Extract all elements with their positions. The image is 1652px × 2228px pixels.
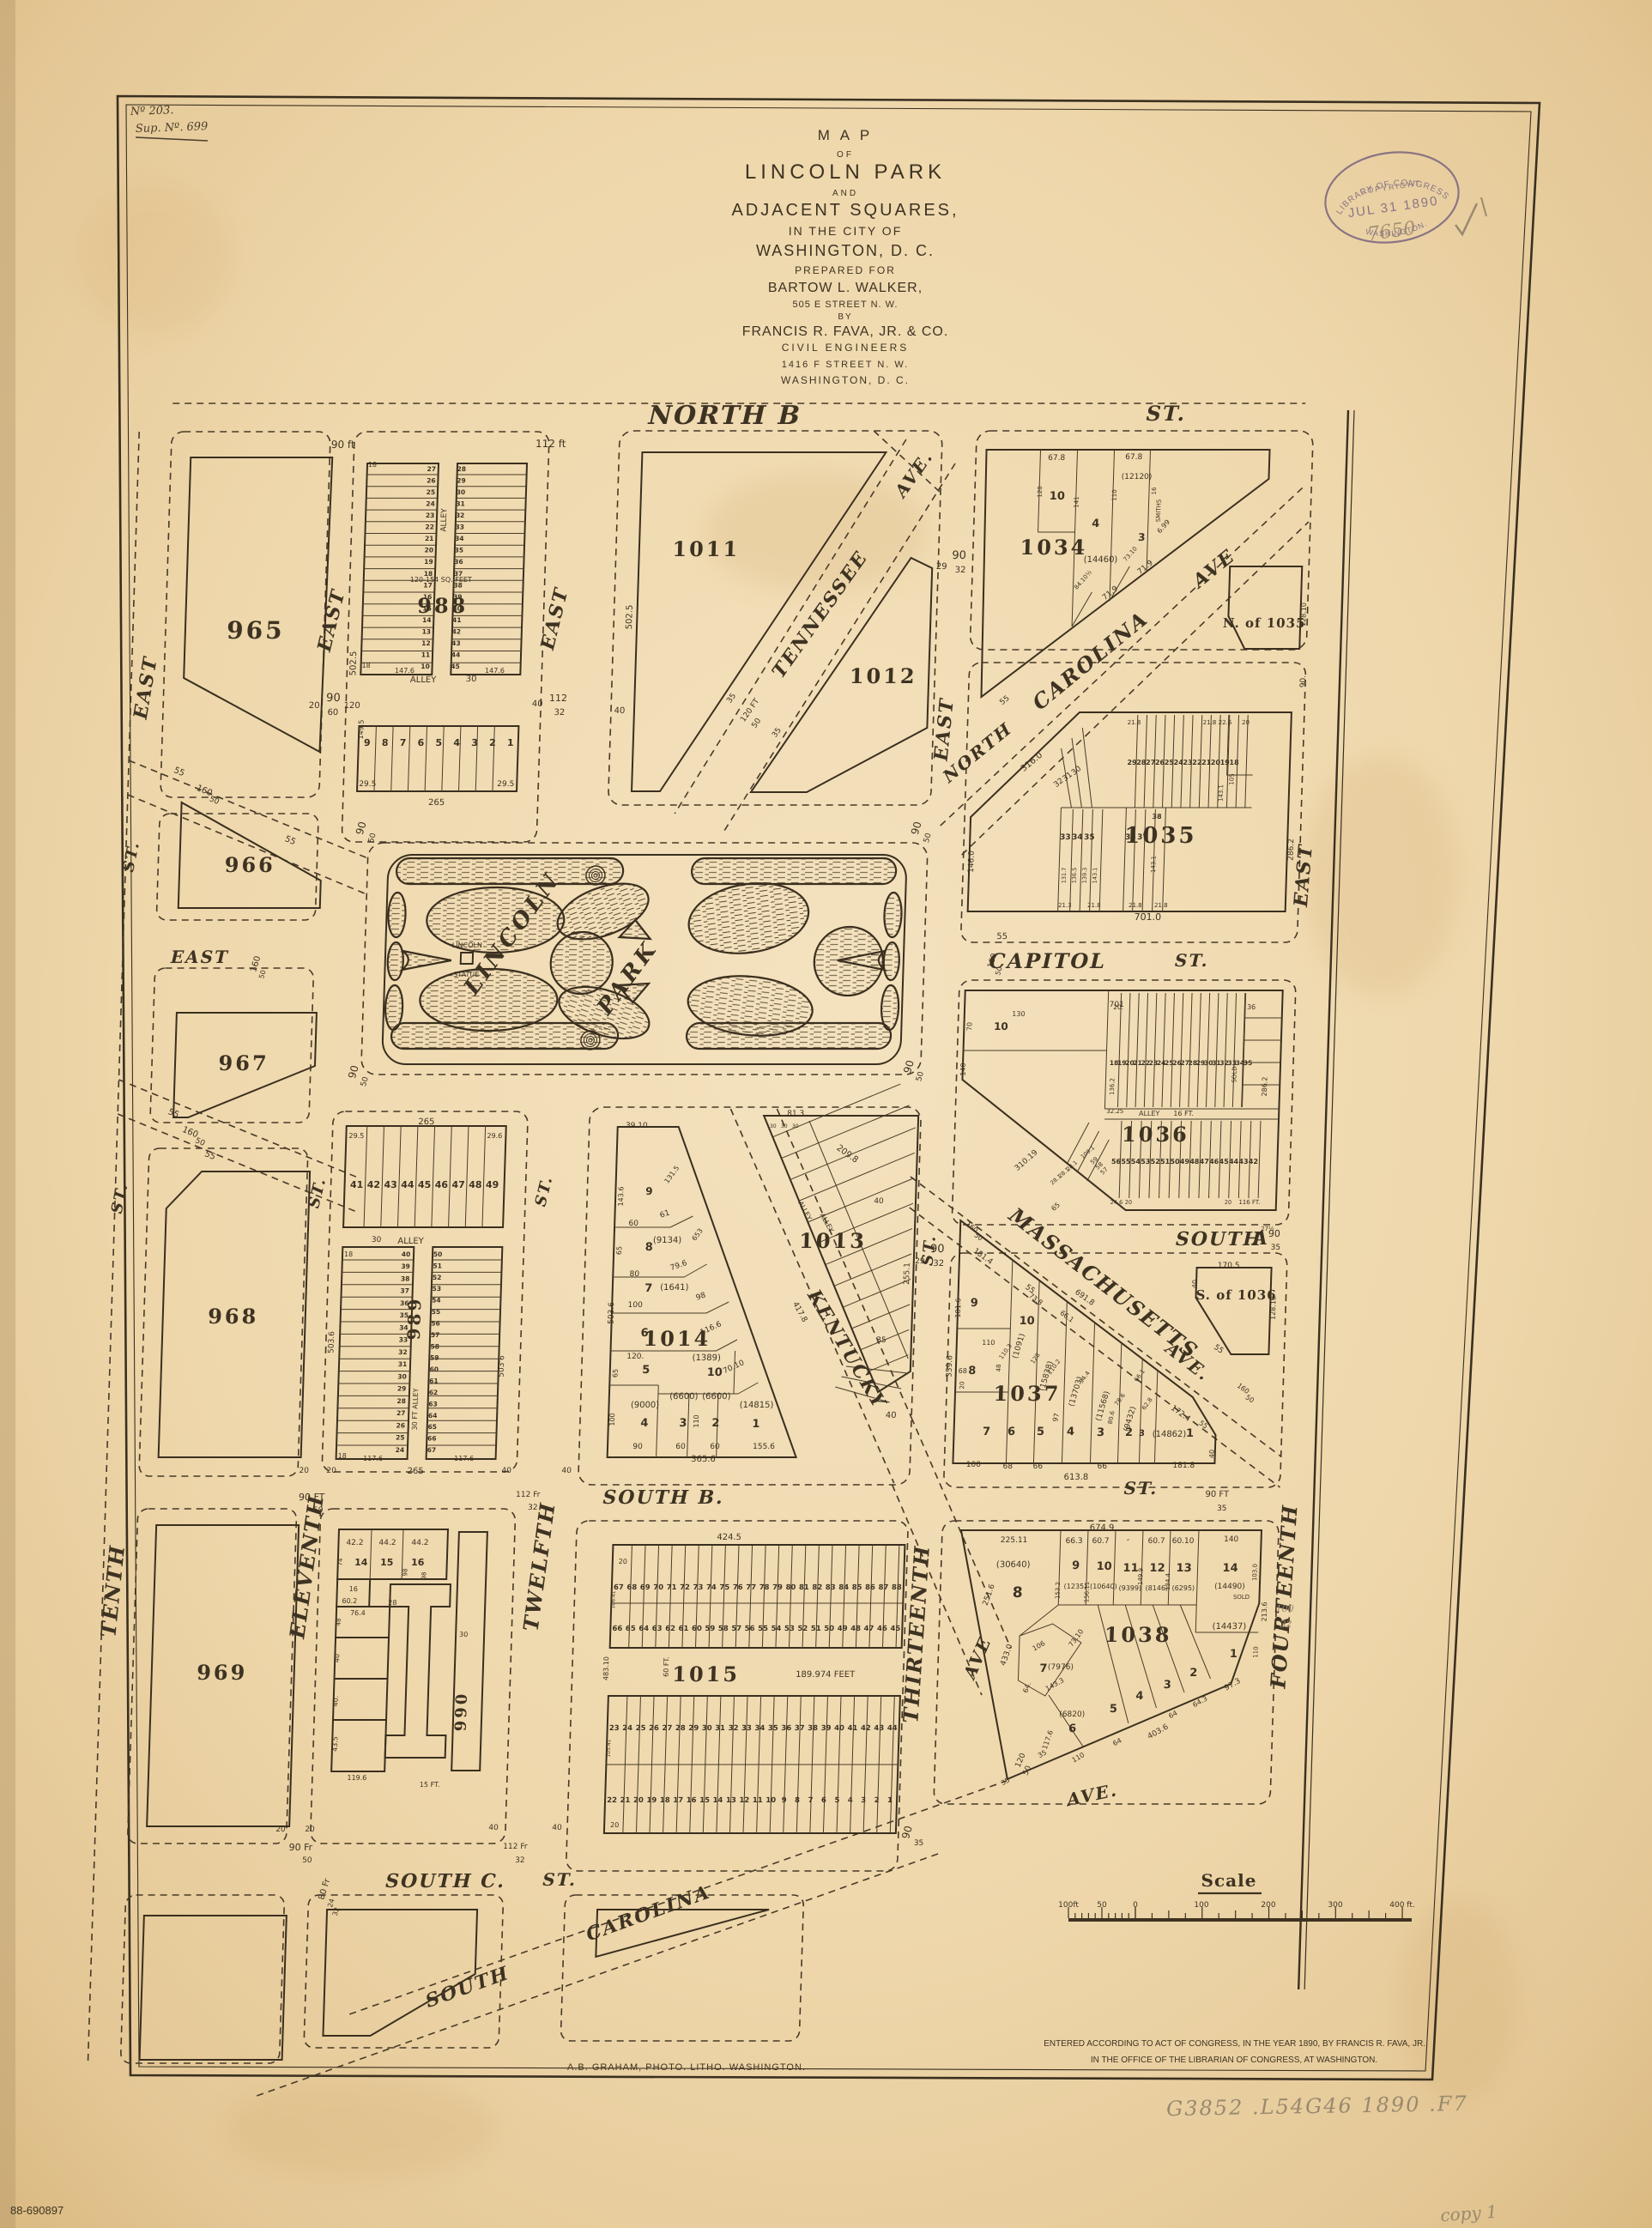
- dimension-label: 100: [966, 1461, 982, 1469]
- dimension-label: 15 FT.: [420, 1781, 440, 1789]
- lot-number: 4: [1067, 1426, 1075, 1438]
- lot-number: 48: [469, 1179, 482, 1190]
- lot-number: 47: [863, 1625, 874, 1633]
- lot-number: 40: [452, 604, 462, 612]
- lot-number: 9: [364, 737, 371, 748]
- title-line: PREPARED FOR: [795, 264, 896, 276]
- street-label: ST.: [1175, 950, 1209, 971]
- title-line: CIVIL ENGINEERS: [782, 342, 910, 354]
- block-number: 966: [224, 852, 275, 877]
- lot-number: 6: [821, 1796, 826, 1805]
- lot-number: 49: [1180, 1158, 1190, 1165]
- lot-number: 29: [457, 477, 466, 485]
- lot-number: 84: [838, 1583, 849, 1592]
- title-line: AND: [832, 189, 858, 198]
- street-label: SOUTH: [1176, 1228, 1263, 1250]
- dimension-label: 100: [1275, 1603, 1293, 1614]
- dimension-label: 29: [915, 1257, 925, 1266]
- lot-number: 27: [1146, 759, 1155, 766]
- lot-number: 35: [768, 1724, 778, 1733]
- dimension-label: 24.6: [1110, 1199, 1123, 1206]
- lot-number: 15: [699, 1796, 710, 1805]
- dimension-label: 117.6: [363, 1455, 383, 1462]
- dimension-label: 110: [1252, 1646, 1259, 1657]
- dimension-label: 265: [418, 1117, 434, 1127]
- dimension-label: (14460): [1084, 555, 1118, 565]
- dimension-label: 60.7: [1092, 1537, 1109, 1546]
- dimension-label: 147.6: [485, 667, 505, 675]
- dimension-label: 153.2: [1054, 1582, 1062, 1599]
- street-label: ST.: [1146, 401, 1186, 426]
- lot-number: 13: [726, 1796, 736, 1805]
- block-number: 1034: [1020, 535, 1088, 560]
- dimension-label: 35: [914, 1839, 924, 1848]
- lot-number: 65: [427, 1423, 437, 1431]
- dimension-label: 48: [335, 1619, 342, 1626]
- lot-number: 44: [887, 1724, 898, 1733]
- dimension-label: 117.6: [454, 1455, 474, 1462]
- barcode-number: 88-690897: [10, 2204, 64, 2217]
- dimension-label: 140: [959, 1063, 967, 1075]
- lot-number: 9: [782, 1796, 787, 1805]
- dimension-label: 60: [675, 1443, 686, 1451]
- dimension-label: 76.4: [350, 1609, 366, 1617]
- lot-number: 22: [425, 524, 434, 531]
- lot-number: 82: [812, 1583, 822, 1592]
- lot-number: 50: [433, 1250, 443, 1258]
- dimension-label: 146.0: [967, 851, 977, 873]
- lot-number: 25: [396, 1434, 405, 1442]
- lot-number: 47: [451, 1179, 465, 1190]
- lot-number: 31: [715, 1724, 725, 1733]
- lot-number: 16: [687, 1796, 697, 1805]
- lot-number: 8: [1012, 1584, 1022, 1601]
- lot-number: 19: [424, 558, 433, 566]
- lot-number: 9: [971, 1297, 979, 1310]
- lot-number: 28: [396, 1397, 406, 1405]
- dimension-label: 65: [615, 1246, 623, 1255]
- lot-number: 37: [795, 1724, 805, 1733]
- lot-number: 31: [398, 1360, 408, 1368]
- lot-number: 33: [741, 1724, 752, 1733]
- dimension-label: 20: [326, 1467, 336, 1475]
- lot-number: 26: [396, 1422, 405, 1430]
- lot-number: 43: [384, 1179, 397, 1190]
- lot-number: 52: [1150, 1158, 1159, 1165]
- lot-number: 32: [456, 512, 465, 519]
- lot-number: 21: [425, 535, 434, 542]
- dimension-label: 365.6: [691, 1455, 716, 1464]
- lot-number: 26: [649, 1724, 659, 1733]
- dimension-label: (12120): [1122, 473, 1153, 481]
- lot-number: 22: [607, 1796, 617, 1805]
- dimension-label: 20: [619, 1558, 627, 1565]
- lot-number: 45: [890, 1625, 900, 1633]
- lot-number: 27: [427, 465, 436, 473]
- lot-number: 38: [1152, 813, 1162, 820]
- lot-number: 60: [429, 1365, 439, 1373]
- lot-number: 40: [834, 1724, 844, 1733]
- lot-number: 7: [983, 1426, 991, 1438]
- dimension-label: 40: [552, 1824, 562, 1832]
- lot-number: 68: [626, 1583, 637, 1592]
- lot-number: 38: [808, 1724, 818, 1733]
- dimension-label: 44.2: [378, 1539, 396, 1547]
- lot-number: 8: [382, 737, 389, 748]
- block-number: 1012: [849, 663, 917, 688]
- lot-number: 32: [728, 1724, 738, 1733]
- dimension-label: 502.5: [625, 605, 635, 630]
- lot-number: 66: [612, 1625, 622, 1633]
- lot-number: 35: [399, 1311, 408, 1319]
- dimension-label: 90 FT: [299, 1492, 325, 1503]
- lot-number: 73: [693, 1583, 703, 1592]
- dimension-label: 40: [614, 706, 625, 716]
- lot-number: 15: [380, 1557, 394, 1568]
- lot-number: 39: [453, 593, 463, 601]
- street-label: ST.: [542, 1869, 577, 1890]
- lot-number: 10: [1096, 1560, 1112, 1573]
- dimension-label: 136.5: [1071, 868, 1079, 884]
- lot-number: 36: [781, 1724, 791, 1733]
- copy-label: copy 1: [1440, 2201, 1498, 2226]
- dimension-label: 66: [1032, 1462, 1043, 1471]
- lot-number: 70: [653, 1583, 663, 1592]
- dimension-label: 35: [1217, 1505, 1227, 1513]
- dimension-label: 21.8: [1087, 902, 1101, 909]
- lot-number: 4: [640, 1417, 649, 1430]
- lot-number: 12: [421, 639, 431, 647]
- dimension-label: 18: [361, 662, 370, 669]
- dimension-label: 265: [428, 798, 445, 808]
- dimension-label: 16: [1151, 487, 1158, 494]
- lot-number: 81: [799, 1583, 809, 1592]
- lot-number: 6: [417, 737, 424, 748]
- dimension-label: 112: [549, 693, 567, 704]
- dimension-label: 119.6: [347, 1774, 366, 1782]
- lot-number: 59: [430, 1354, 439, 1362]
- lot-number: 5: [1110, 1703, 1118, 1716]
- scale-title: Scale: [1201, 1870, 1257, 1891]
- block-number: 1015: [672, 1662, 741, 1686]
- lot-number: 10: [765, 1796, 776, 1805]
- lot-number: 44: [401, 1179, 415, 1190]
- lot-number: 10: [994, 1020, 1008, 1032]
- dimension-label: 67.8: [1048, 454, 1066, 463]
- dimension-label: 35: [876, 1336, 887, 1345]
- dimension-label: 170.5: [1218, 1262, 1240, 1270]
- lot-number: 45: [418, 1179, 432, 1190]
- lot-number: 17: [423, 581, 433, 589]
- dimension-label: 30: [792, 1123, 799, 1129]
- note-sup-number: Sup. Nº. 699: [136, 120, 209, 136]
- lot-number: 69: [640, 1583, 651, 1592]
- title-line: OF: [837, 150, 854, 160]
- copyright-line-2: IN THE OFFICE OF THE LIBRARIAN OF CONGRE…: [1091, 2055, 1377, 2065]
- lot-number: 37: [400, 1287, 409, 1295]
- dimension-label: 143.1: [1092, 868, 1099, 884]
- lot-number: 63: [652, 1625, 663, 1633]
- lot-number: 56: [1111, 1158, 1122, 1165]
- lot-number: 3: [679, 1417, 687, 1430]
- dimension-label: 103.0: [1251, 1564, 1259, 1581]
- dimension-label: 90: [930, 1243, 945, 1256]
- lot-number: 46: [1209, 1158, 1219, 1165]
- dimension-label: (6820): [1059, 1710, 1085, 1719]
- lot-number: 4: [453, 737, 460, 748]
- lot-number: 49: [838, 1625, 848, 1633]
- dimension-label: SOLD: [1233, 1594, 1250, 1601]
- dimension-label: 60: [628, 1220, 638, 1228]
- lot-number: 9: [645, 1185, 653, 1197]
- lot-number: 1: [1230, 1648, 1238, 1661]
- dimension-label: 18: [344, 1250, 353, 1258]
- lot-number: 14: [1222, 1562, 1238, 1575]
- lot-number: 39: [401, 1262, 410, 1270]
- note-number: Nº 203.: [130, 104, 174, 118]
- lot-number: 75: [719, 1583, 729, 1592]
- dimension-label: 255.1: [903, 1262, 912, 1285]
- dimension-label: 43.5: [331, 1736, 340, 1752]
- lot-number: 5: [435, 737, 442, 748]
- dimension-label: 502.5: [348, 651, 359, 676]
- lot-number: 35: [454, 547, 463, 554]
- title-line: 505 E STREET N. W.: [793, 300, 899, 310]
- dimension-label: 120.: [626, 1353, 644, 1361]
- lot-number: 2: [489, 737, 496, 748]
- lot-number: 6: [640, 1327, 649, 1340]
- dimension-label: 21.8: [1154, 902, 1168, 909]
- lot-number: 38: [453, 581, 463, 589]
- block-number: 1038: [1104, 1622, 1172, 1647]
- dimension-label: (9134): [653, 1236, 682, 1245]
- dimension-label: 16: [349, 1585, 358, 1593]
- lot-number: 47: [1200, 1158, 1209, 1165]
- lot-number: 13: [422, 627, 432, 635]
- lot-number: 2: [1189, 1667, 1198, 1680]
- lot-number: 30: [397, 1373, 407, 1381]
- dimension-label: (30640): [996, 1560, 1031, 1570]
- lot-number: 25: [635, 1724, 645, 1733]
- lot-number: 45: [1219, 1158, 1229, 1165]
- dimension-label: 128.10: [1299, 602, 1308, 627]
- lot-number: 21: [620, 1796, 630, 1805]
- lot-number: 42: [367, 1179, 381, 1190]
- dimension-label: 112 Fr: [503, 1843, 528, 1851]
- lot-number: 57: [431, 1331, 440, 1339]
- lot-number: 51: [1160, 1158, 1171, 1165]
- block-number: 990: [452, 1692, 471, 1732]
- lot-number: 27: [662, 1724, 672, 1733]
- dimension-label: 120: [343, 701, 360, 711]
- lot-number: 72: [680, 1583, 690, 1592]
- dimension-label: 141: [1073, 496, 1080, 507]
- street-label: SOUTH B.: [602, 1486, 724, 1509]
- lot-number: 53: [784, 1625, 795, 1633]
- title-line: WASHINGTON, D. C.: [756, 242, 935, 259]
- dimension-label: 68: [959, 1367, 967, 1375]
- title-line: ADJACENT SQUARES,: [731, 201, 959, 220]
- dimension-label: 100: [608, 1413, 616, 1426]
- lot-number: 64: [428, 1412, 438, 1420]
- lot-number: 18: [1229, 759, 1239, 766]
- lot-number: 33: [1060, 833, 1071, 842]
- lot-number: 3: [861, 1796, 866, 1805]
- lot-number: 12: [1149, 1562, 1165, 1575]
- dimension-label: 213.6: [1261, 1602, 1269, 1622]
- dimension-label: 20: [299, 1467, 309, 1475]
- lot-number: 13: [1176, 1562, 1192, 1575]
- lot-number: 23: [1183, 759, 1192, 766]
- dimension-label: 40: [333, 1654, 341, 1662]
- lot-number: 86: [865, 1583, 875, 1592]
- dimension-label: 60.7: [1147, 1537, 1165, 1546]
- lot-number: 1: [752, 1418, 760, 1431]
- lot-number: 24: [622, 1724, 632, 1733]
- lot-number: 27: [396, 1409, 406, 1417]
- lot-number: 42: [452, 627, 462, 635]
- lot-number: 32: [398, 1348, 408, 1356]
- lot-number: 7: [400, 737, 407, 748]
- lot-number: 18: [660, 1796, 670, 1805]
- lot-number: 33: [399, 1336, 408, 1344]
- dimension-label: 143.1: [1218, 784, 1225, 802]
- street-label: EAST: [170, 947, 230, 967]
- lot-number: 8: [645, 1241, 654, 1254]
- dimension-label: (6295): [1171, 1584, 1195, 1592]
- dimension-label: 65: [612, 1369, 620, 1377]
- dimension-label: 20: [959, 1382, 965, 1389]
- lot-number: 18: [424, 570, 433, 578]
- lot-number: 52: [797, 1625, 808, 1633]
- lot-number: 34: [1072, 833, 1083, 842]
- lot-number: 78: [759, 1583, 769, 1592]
- dimension-label: LINCOLN: [452, 941, 482, 949]
- lot-number: 37: [454, 570, 463, 578]
- lot-number: 51: [433, 1262, 442, 1269]
- dimension-label: 39.10: [626, 1122, 648, 1130]
- lot-number: 41: [350, 1179, 364, 1190]
- dimension-label: 20: [1125, 1199, 1133, 1206]
- lot-number: 5: [642, 1364, 651, 1377]
- dimension-label: 424.5: [717, 1533, 741, 1542]
- lot-number: 61: [678, 1625, 688, 1633]
- lot-number: 14: [422, 616, 432, 624]
- dimension-label: 20: [309, 701, 320, 711]
- lot-number: 58: [718, 1625, 729, 1633]
- dimension-label: SMITHS: [1155, 499, 1163, 522]
- lot-number: 41: [847, 1724, 857, 1733]
- lot-number: 65: [626, 1625, 636, 1633]
- dimension-label: 55: [996, 932, 1008, 941]
- lot-number: 77: [746, 1583, 756, 1592]
- dimension-label: 48: [995, 1365, 1002, 1372]
- dimension-label: 28: [388, 1599, 396, 1607]
- dimension-label: 30: [781, 1123, 788, 1129]
- lot-number: 48: [850, 1625, 861, 1633]
- dimension-label: 32: [933, 1259, 944, 1268]
- dimension-label: 50: [313, 1506, 324, 1515]
- dimension-label: 29.5: [348, 1132, 364, 1140]
- dimension-label: (6600): [669, 1392, 699, 1402]
- dimension-label: 128.10: [1269, 1296, 1278, 1320]
- map-sheet: NORTH BST.EASTST.ST.TENTHEASTST.ELEVENTH…: [0, 0, 1652, 2228]
- dimension-label: 90: [632, 1443, 643, 1451]
- lot-number: 53: [1141, 1158, 1150, 1165]
- dimension-label: 140: [1224, 1535, 1239, 1544]
- lot-number: 1: [507, 737, 514, 748]
- dimension-label: 130: [1012, 1010, 1026, 1018]
- dimension-label: 156.11: [1083, 1582, 1091, 1602]
- dimension-label: 90: [1268, 1228, 1280, 1239]
- dimension-label: 359.6: [946, 1355, 955, 1377]
- lot-number: 8: [795, 1796, 800, 1805]
- dimension-label: (14815): [740, 1401, 774, 1410]
- lot-number: 3: [1164, 1679, 1172, 1692]
- block-number: 968: [208, 1304, 259, 1329]
- dimension-label: 66: [1097, 1462, 1107, 1471]
- scale-tick-label: 100ft: [1058, 1901, 1079, 1910]
- lot-number: 88: [892, 1583, 902, 1592]
- dimension-label: 70: [965, 1022, 973, 1031]
- dimension-label: 189.974 FEET: [796, 1670, 856, 1680]
- lot-number: 2: [874, 1796, 880, 1805]
- lot-number: 55: [1121, 1158, 1131, 1165]
- dimension-label: 143.6: [617, 1187, 626, 1207]
- title-line: LINCOLN PARK: [745, 160, 946, 184]
- dimension-label: 81.3: [787, 1110, 804, 1118]
- lot-number: 23: [426, 512, 435, 519]
- scale-tick-label: 200: [1261, 1901, 1275, 1910]
- dimension-label: 613.8: [1063, 1473, 1088, 1482]
- lot-number: 29: [397, 1385, 407, 1393]
- lot-number: 64: [638, 1625, 649, 1633]
- dimension-label: ALLEY: [397, 1237, 425, 1246]
- dimension-label: 30: [466, 675, 477, 684]
- lot-number: 57: [731, 1625, 741, 1633]
- title-line: M A P: [818, 127, 873, 143]
- dimension-label: 18: [368, 461, 377, 469]
- dimension-label: 32: [955, 566, 966, 575]
- dimension-label: 42.2: [346, 1539, 363, 1547]
- dimension-label: 66.3: [1065, 1537, 1082, 1546]
- lot-number: 66: [427, 1435, 437, 1443]
- lot-number: 42: [861, 1724, 871, 1733]
- title-line: BY: [838, 312, 852, 322]
- lot-number: 10: [706, 1366, 723, 1379]
- lot-number: 36: [454, 558, 463, 566]
- dimension-label: 503'6: [498, 1355, 507, 1377]
- lot-number: 20: [633, 1796, 644, 1805]
- lot-number: 28: [457, 465, 466, 473]
- dimension-label: 74: [337, 1558, 344, 1565]
- dimension-label: 21.8: [1128, 719, 1141, 726]
- lot-number: 29: [688, 1724, 699, 1733]
- dimension-label: 20: [275, 1825, 286, 1834]
- lot-number: 52: [433, 1274, 442, 1281]
- lot-number: 3: [1139, 1429, 1145, 1438]
- dimension-label: 29: [936, 562, 947, 572]
- title-line: IN THE CITY OF: [789, 224, 903, 238]
- dimension-label: 40: [874, 1197, 884, 1206]
- lot-number: 35: [1244, 1059, 1253, 1067]
- lot-number: 46: [877, 1625, 887, 1633]
- lot-number: 22: [1192, 759, 1201, 766]
- dimension-label: 90: [952, 549, 966, 562]
- street-label: SOUTH C.: [385, 1870, 506, 1892]
- lot-number: 9: [1072, 1559, 1080, 1572]
- dimension-label: 110: [693, 1414, 700, 1427]
